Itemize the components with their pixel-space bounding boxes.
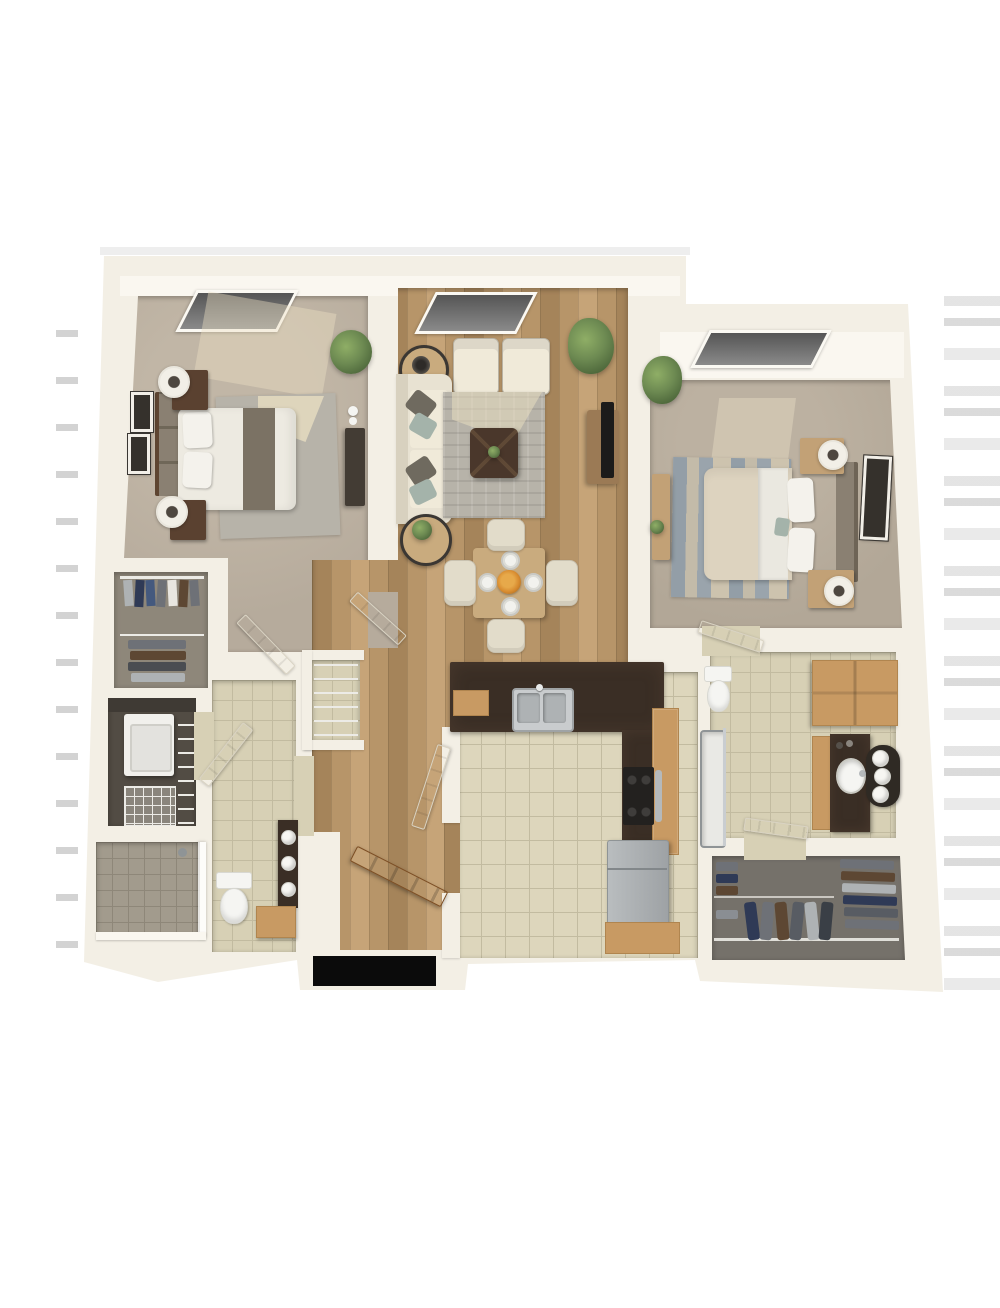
closet-left-shirt-2 (134, 580, 144, 607)
closet-right-stack-right-5 (844, 907, 898, 918)
bathtub-glass-rod (723, 728, 726, 846)
vanity-right-bottle-2 (846, 740, 853, 747)
centerpiece-flowers (497, 570, 521, 594)
closet-right-stack-right-3 (842, 883, 896, 894)
toilet-left-bowl (220, 888, 248, 924)
floor-plan-canvas (0, 0, 1000, 1308)
closet-right-stack-left-3 (716, 886, 738, 895)
closet-right-stack-right-2 (841, 871, 895, 882)
plate-top (501, 551, 520, 570)
closet-right-stack-left-4 (716, 910, 738, 919)
closet-left-shirt-6 (178, 580, 188, 607)
closet-left-stack-3 (128, 662, 186, 671)
laundry-wire-basket (124, 786, 176, 826)
vanity-left-towel-2 (281, 856, 296, 871)
wall-frame-1 (131, 392, 153, 432)
armchair-2 (502, 338, 550, 395)
tv-screen (601, 402, 614, 478)
niche-wall-left (302, 650, 312, 750)
kitchen-sink-basin-right (543, 693, 566, 723)
dresser-bedroom-left (345, 428, 365, 506)
shower-glass-panel (198, 842, 206, 938)
dining-chair-left (444, 560, 476, 606)
vanity-left-towel-3 (281, 882, 296, 897)
compression-artifact-left (56, 330, 78, 970)
plate-bottom (501, 597, 520, 616)
laundry-wire-rack-side (178, 714, 194, 824)
kitchen-cabinet-top-left (453, 690, 489, 716)
towel-roll-3 (872, 786, 889, 803)
closet-right-rail-bottom (714, 938, 899, 941)
entry-doorway-gap (313, 956, 436, 986)
toilet-right-bowl (707, 680, 730, 712)
kitchen-cabinet-bottom (605, 922, 680, 954)
dresser-decor-vase (348, 406, 358, 416)
linen-niche-wire-shelves (314, 664, 358, 736)
dresser-decor-vase-2 (349, 417, 357, 425)
shower-head-icon (178, 848, 187, 857)
dresser-bedroom-right (652, 474, 670, 560)
armchair-1 (453, 338, 499, 395)
vanity-left-cabinet (256, 906, 296, 938)
closet-left-shelf (120, 634, 204, 636)
washer-door (130, 724, 172, 772)
plant-tall-living-icon (568, 318, 614, 374)
lamp-right-top (818, 440, 848, 470)
compression-artifact-top (100, 247, 690, 255)
vanity-right-faucet-icon (859, 770, 866, 777)
plate-right (524, 573, 543, 592)
bed-left-runner (243, 408, 275, 510)
closet-left-shirt-1 (123, 580, 134, 607)
towel-roll-2 (874, 768, 891, 785)
kitchen-wall-lower (442, 893, 460, 958)
closet-right-stack-left-2 (716, 874, 738, 883)
vanity-left-towel-1 (281, 830, 296, 845)
refrigerator (607, 840, 669, 926)
dining-chair-bottom (487, 619, 525, 653)
closet-right-stack-right-1 (840, 859, 894, 870)
wall-frame-2 (128, 434, 150, 474)
towel-roll-1 (872, 750, 889, 767)
closet-right-stack-left-1 (716, 862, 738, 871)
dresser-plant-icon (650, 520, 664, 534)
window-bedroom-right (690, 330, 831, 368)
plant-bedroom-right-icon (642, 356, 682, 404)
table-lamp-living (412, 356, 430, 374)
lamp-left-top (158, 366, 190, 398)
laundry-shadow (108, 698, 196, 712)
lamp-left-bottom (156, 496, 188, 528)
kitchen-wall-upper (442, 727, 460, 823)
kitchen-faucet-icon (536, 684, 543, 691)
bed-left-pillow-2 (182, 451, 213, 488)
dining-chair-right (546, 560, 578, 606)
closet-left-shirt-3 (145, 580, 155, 606)
closet-left-stack-1 (128, 640, 186, 649)
closet-left-shirt-5 (167, 580, 177, 606)
closet-right-stack-right-4 (843, 895, 897, 906)
vanity-right-bottle-1 (836, 742, 843, 749)
headboard-right (836, 462, 858, 582)
bed-right-pillow-2 (787, 527, 815, 572)
shower-curb (96, 932, 206, 940)
closet-left-stack-2 (130, 651, 186, 660)
side-table-plant-icon (412, 520, 432, 540)
toilet-left-tank (216, 872, 252, 889)
niche-wall-top (304, 650, 364, 660)
linen-cabinet-right (812, 660, 898, 726)
doorway-kitchen (444, 823, 460, 893)
lamp-right-bottom (824, 576, 854, 606)
refrigerator-split (607, 868, 667, 870)
coffee-table-decor-icon (488, 446, 500, 458)
kitchen-sink-basin-left (517, 693, 540, 723)
dining-chair-top (487, 519, 525, 551)
compression-artifact-right (944, 296, 1000, 1008)
plant-bedroom-left-icon (330, 330, 372, 374)
closet-left-shirt-4 (156, 580, 167, 608)
bed-left-pillow-1 (182, 411, 213, 448)
bed-right-pillow-1 (787, 477, 815, 522)
stove (623, 767, 654, 825)
closet-right-rail-mid (714, 896, 834, 898)
closet-right-stack-right-6 (845, 919, 899, 930)
closet-left-shirt-7 (189, 580, 200, 607)
plate-left (478, 573, 497, 592)
window-living (414, 292, 537, 334)
closet-left-stack-4 (131, 673, 185, 682)
niche-wall-bottom (304, 740, 364, 750)
closet-left-rail (120, 576, 204, 579)
wall-frame-bedroom-right (860, 455, 892, 540)
stove-handle (655, 770, 662, 822)
bed-right-accent-pillow (774, 517, 790, 537)
vanity-right-cabinet (812, 736, 832, 830)
